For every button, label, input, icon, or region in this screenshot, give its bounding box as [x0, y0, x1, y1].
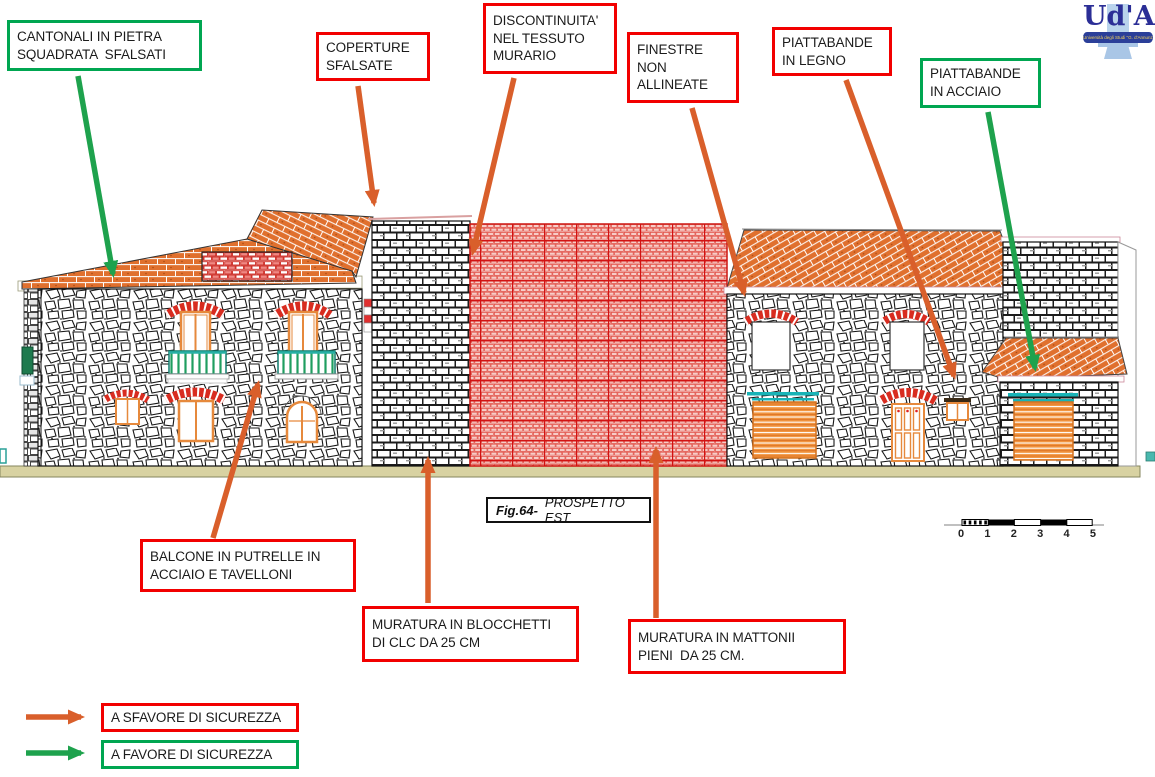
annotation-text: FINESTRE NON ALLINEATE — [637, 41, 708, 94]
annotation-piattabande-legno: PIATTABANDE IN LEGNO — [772, 27, 892, 76]
legend-label: A FAVORE DI SICUREZZA — [111, 746, 272, 764]
tick-label: 3 — [1035, 528, 1045, 540]
balcony-slab — [275, 374, 338, 379]
balcony-railing — [278, 351, 335, 374]
bench-mark-right — [1146, 452, 1155, 461]
tick-label: 2 — [1009, 528, 1019, 540]
green-shutter — [22, 347, 33, 374]
scalebar-ticks: 0 1 2 3 4 5 — [956, 528, 1098, 540]
figure-title: PROSPETTO EST — [545, 495, 641, 525]
annotation-coperture: COPERTURE SFALSATE — [316, 32, 430, 81]
tick-label: 0 — [956, 528, 966, 540]
figure-caption: Fig.64- PROSPETTO EST — [486, 497, 651, 523]
balcony-railing — [169, 351, 226, 374]
right-building — [724, 229, 1022, 466]
annotation-text: PIATTABANDE IN ACCIAIO — [930, 65, 1021, 101]
legend-favore: A FAVORE DI SICUREZZA — [101, 740, 299, 769]
annotation-balcone: BALCONE IN PUTRELLE IN ACCIAIO E TAVELLO… — [140, 539, 356, 592]
logo-plinth — [1098, 43, 1138, 47]
annotation-text: MURATURA IN MATTONII PIENI DA 25 CM. — [638, 629, 795, 665]
annotation-text: BALCONE IN PUTRELLE IN ACCIAIO E TAVELLO… — [150, 548, 320, 584]
annotation-text: MURATURA IN BLOCCHETTI DI CLC DA 25 CM — [372, 616, 551, 652]
logo-base — [1104, 47, 1132, 59]
window-opening-a — [745, 314, 797, 371]
university-logo: Ud'A Università degli Studi "G. d'Annunz… — [1083, 2, 1153, 62]
annotation-cantonali: CANTONALI IN PIETRA SQUADRATA SFALSATI — [7, 20, 202, 71]
left-building — [18, 210, 373, 466]
garage-shutter-2 — [1008, 393, 1078, 460]
chimney — [202, 252, 292, 281]
annotation-piattabande-acciaio: PIATTABANDE IN ACCIAIO — [920, 58, 1041, 108]
steel-lintel — [1008, 393, 1078, 397]
ground-line — [0, 466, 1140, 477]
logo-acronym: Ud'A — [1083, 2, 1153, 32]
red-brick-wall — [470, 224, 727, 466]
window-opening-b — [883, 314, 929, 370]
small-window-wood-lintel — [944, 398, 971, 420]
annotation-mattonii: MURATURA IN MATTONII PIENI DA 25 CM. — [628, 619, 846, 674]
balcony-slab — [166, 374, 229, 379]
annotation-text: PIATTABANDE IN LEGNO — [782, 34, 873, 70]
roof-far-right — [982, 338, 1127, 379]
figure-canvas: CANTONALI IN PIETRA SQUADRATA SFALSATI C… — [0, 0, 1155, 777]
annotation-text: CANTONALI IN PIETRA SQUADRATA SFALSATI — [17, 28, 166, 64]
scale-bar — [944, 520, 1104, 526]
legend-sfavore: A SFAVORE DI SICUREZZA — [101, 703, 299, 732]
steel-lintel — [747, 392, 819, 396]
annotation-text: DISCONTINUITA' NEL TESSUTO MURARIO — [493, 12, 598, 65]
tick-label: 1 — [982, 528, 992, 540]
annotation-text: COPERTURE SFALSATE — [326, 39, 410, 75]
logo-banner: Università degli Studi "G. d'Annunzio" — [1083, 32, 1153, 43]
annotation-blocchetti: MURATURA IN BLOCCHETTI DI CLC DA 25 CM — [362, 606, 579, 662]
clc-block-wall — [372, 221, 470, 466]
far-right-building — [982, 237, 1136, 466]
annotation-discontinuita: DISCONTINUITA' NEL TESSUTO MURARIO — [483, 3, 617, 74]
tick-label: 5 — [1088, 528, 1098, 540]
wood-lintel — [944, 398, 971, 402]
eave-board — [724, 287, 1022, 294]
tick-label: 4 — [1062, 528, 1072, 540]
bench-mark-left — [0, 449, 6, 463]
arrow-cantonali — [78, 76, 113, 274]
annotation-finestre: FINESTRE NON ALLINEATE — [627, 32, 739, 103]
figure-number: Fig.64- — [496, 503, 538, 518]
garage-shutter-1 — [747, 392, 819, 458]
legend-label: A SFAVORE DI SICUREZZA — [111, 709, 281, 727]
roof-right — [727, 230, 1021, 288]
arrow-coperture — [358, 86, 374, 203]
